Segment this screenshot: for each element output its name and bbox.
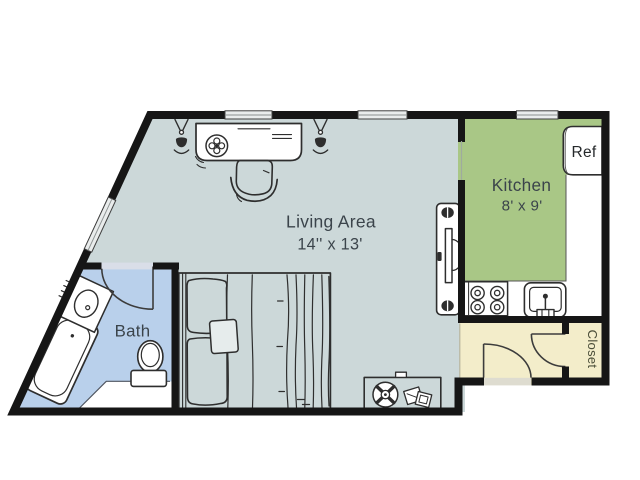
kitchen-label: Kitchen xyxy=(492,175,551,195)
stove xyxy=(464,282,508,316)
desk-plant-icon xyxy=(206,135,228,157)
living-area-label: Living Area xyxy=(286,212,376,232)
living-area-dimensions: 14'' x 13' xyxy=(297,236,362,254)
floor-plan: Living Area 14'' x 13' Kitchen 8' x 9' B… xyxy=(0,0,640,480)
closet-label: Closet xyxy=(585,330,600,369)
kitchen-sink xyxy=(524,283,565,318)
refrigerator-label: Ref xyxy=(571,144,596,161)
bath-door-threshold xyxy=(102,263,154,270)
floor-plan-canvas: Living Area 14'' x 13' Kitchen 8' x 9' B… xyxy=(0,0,640,480)
window xyxy=(517,111,559,119)
tv xyxy=(445,229,452,283)
window xyxy=(225,111,272,119)
entry-closet-floor xyxy=(460,316,607,385)
bed-cushion xyxy=(209,319,238,353)
bath-label: Bath xyxy=(115,322,151,341)
kitchen-dimensions: 8' x 9' xyxy=(502,198,543,215)
table-fan-icon xyxy=(373,382,398,407)
desk xyxy=(196,124,302,169)
entry-door-threshold xyxy=(484,378,531,386)
window xyxy=(358,111,407,119)
